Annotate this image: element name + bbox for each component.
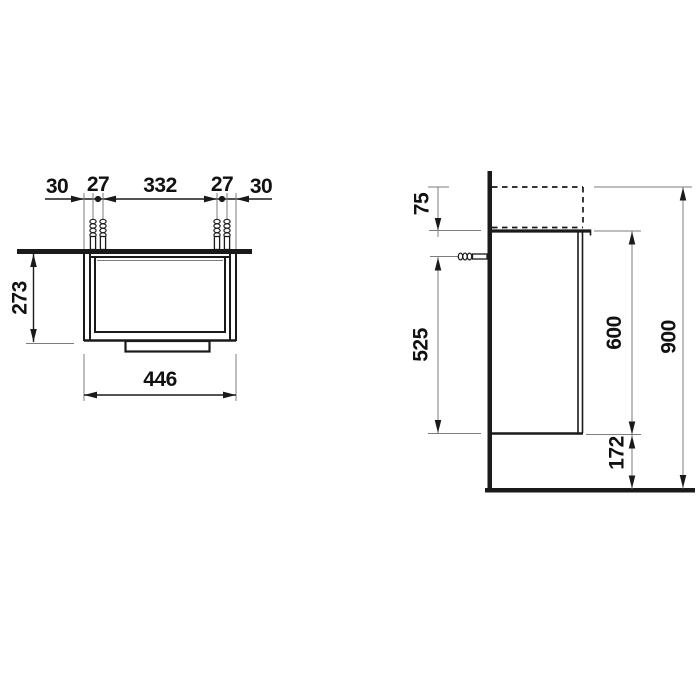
dim-label-center-span: 332 (143, 174, 177, 197)
dimension-dot (95, 196, 101, 202)
dim-label-bottom-clearance: 172 (605, 436, 628, 470)
dim-label-width: 446 (143, 368, 177, 391)
dimension-cabinet-height: 600 (586, 231, 641, 435)
arrowhead-icon (71, 196, 84, 203)
arrowhead-icon (680, 188, 687, 201)
dimension-anchor-height: 525 (409, 257, 481, 434)
arrowhead-icon (30, 254, 37, 267)
dimension-drawing: 30 27 332 27 30 (0, 0, 700, 700)
dimension-depth: 273 (8, 254, 74, 344)
technical-drawing-page: 30 27 332 27 30 (0, 0, 700, 700)
arrowhead-icon (435, 420, 442, 433)
arrowhead-icon (629, 476, 636, 489)
arrowhead-icon (103, 196, 116, 203)
arrowhead-icon (30, 329, 37, 342)
dimension-top-overhang: 75 (410, 187, 481, 237)
dim-label-total-height: 900 (657, 320, 680, 354)
wall-anchor-icon (224, 219, 230, 249)
dim-label-anchor-height: 525 (409, 327, 432, 361)
floor-line (485, 488, 695, 493)
dim-label-left-offset: 30 (46, 175, 68, 198)
arrowhead-icon (680, 475, 687, 488)
cabinet-front-protrusion (126, 341, 210, 352)
wall-line-side (488, 171, 493, 492)
wall-anchor-icon (100, 219, 106, 249)
arrowhead-icon (204, 196, 217, 203)
arrowhead-icon (629, 422, 636, 435)
cabinet-plan-outline (84, 254, 236, 352)
dimension-dot (219, 196, 225, 202)
side-view: 75 525 600 172 (409, 171, 695, 493)
wall-anchors-plan (90, 219, 230, 249)
dim-label-right-offset: 30 (250, 175, 272, 198)
dimension-width: 446 (84, 354, 236, 401)
cabinet-inner-panel (95, 257, 225, 332)
arrowhead-icon (84, 392, 97, 399)
plan-view: 30 27 332 27 30 (8, 173, 272, 401)
arrowhead-icon (629, 436, 636, 449)
arrowhead-icon (223, 392, 236, 399)
dim-label-right-pair-gap: 27 (211, 173, 233, 196)
dim-label-top-overhang: 75 (410, 192, 433, 215)
arrowhead-icon (629, 232, 636, 245)
dimension-chain-top: 30 27 332 27 30 (45, 173, 272, 249)
arrowhead-icon (435, 218, 442, 231)
dim-label-depth: 273 (8, 281, 31, 315)
dim-label-cabinet-height: 600 (603, 316, 626, 350)
arrowhead-icon (435, 258, 442, 271)
wall-line-plan (17, 249, 252, 254)
wall-anchor-side-icon (430, 253, 487, 260)
cabinet-side-outline (492, 230, 591, 434)
arrowhead-icon (236, 196, 249, 203)
dimension-bottom-clearance: 172 (605, 435, 635, 489)
washbasin-dashed-outline (492, 187, 583, 228)
wall-anchor-icon (90, 219, 96, 249)
dim-label-left-pair-gap: 27 (87, 173, 109, 196)
wall-anchor-icon (214, 219, 220, 249)
